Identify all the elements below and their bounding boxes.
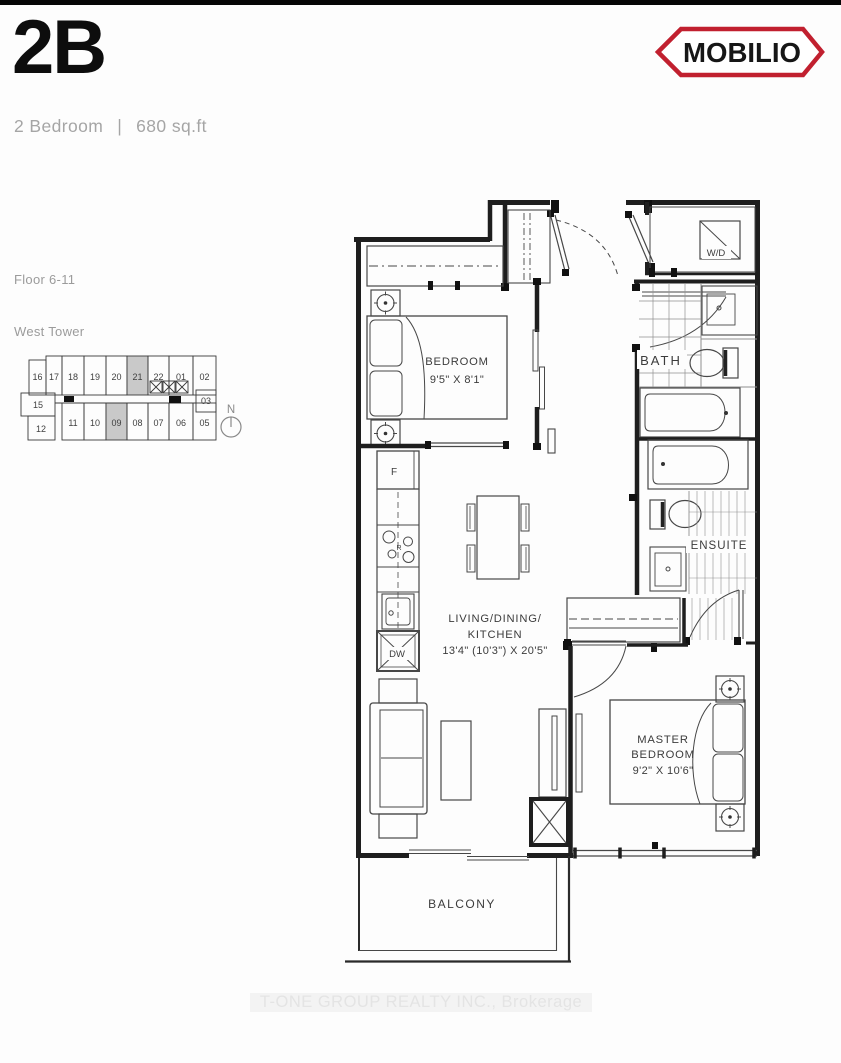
bedroom2-dims: 9'5" X 8'1"	[430, 374, 484, 386]
svg-text:18: 18	[68, 372, 78, 382]
laundry-closet: W/D	[645, 202, 757, 277]
nightstand-lamp-icons	[371, 290, 400, 447]
svg-text:16: 16	[32, 372, 42, 382]
balcony-label: BALCONY	[428, 897, 496, 911]
ensuite-door	[683, 590, 757, 645]
bath-tub-icon	[640, 388, 740, 437]
bedroom2: BEDROOM 9'5" X 8'1"	[356, 246, 555, 453]
ensuite-tub-icon	[648, 440, 748, 489]
master-bedroom: MASTER BEDROOM 9'2" X 10'6"	[573, 676, 757, 859]
svg-text:07: 07	[153, 418, 163, 428]
ensuite-label: ENSUITE	[691, 540, 748, 552]
side-table-icon	[379, 679, 417, 703]
svg-text:N: N	[227, 404, 235, 416]
bath-label: BATH	[640, 353, 682, 368]
master-door	[564, 639, 688, 697]
living-label-2: KITCHEN	[468, 629, 523, 641]
master-window-wall	[573, 842, 757, 859]
coffee-table-icon	[441, 721, 471, 800]
svg-text:02: 02	[199, 372, 209, 382]
dining-chair-icons	[467, 504, 529, 572]
keyplate: 16 17 18 19 20 21 22 01 02 11 10 09 08 0…	[21, 356, 216, 440]
bath-sink-icon	[702, 286, 757, 335]
svg-text:19: 19	[90, 372, 100, 382]
plan-canvas: 16 17 18 19 20 21 22 01 02 11 10 09 08 0…	[0, 0, 841, 1063]
fridge-label: F	[391, 467, 397, 478]
svg-text:21: 21	[132, 372, 142, 382]
svg-text:10: 10	[90, 418, 100, 428]
tv-console-icon	[539, 709, 582, 797]
svg-text:15: 15	[33, 400, 43, 410]
foyer-closet	[501, 202, 550, 291]
dishwasher-label: DW	[389, 649, 405, 660]
dining-table-icon	[477, 496, 519, 579]
svg-text:20: 20	[111, 372, 121, 382]
balcony-door	[409, 850, 529, 860]
sofa-icon	[370, 703, 427, 814]
svg-text:17: 17	[49, 372, 59, 382]
range-label: R	[396, 545, 401, 552]
living-furniture	[370, 679, 582, 845]
north-compass-icon: N	[221, 404, 241, 437]
dishwasher-icon: DW	[377, 631, 419, 671]
wd-label: W/D	[707, 248, 726, 259]
svg-text:08: 08	[132, 418, 142, 428]
svg-text:22: 22	[153, 372, 163, 382]
master-label-1: MASTER	[637, 734, 688, 746]
bedroom2-label: BEDROOM	[425, 356, 488, 368]
hall-closet	[567, 598, 684, 645]
master-label-2: BEDROOM	[631, 749, 694, 761]
svg-text:12: 12	[36, 424, 46, 434]
svg-text:11: 11	[68, 418, 77, 428]
fridge-icon: F	[377, 451, 419, 489]
kitchen: F R	[377, 451, 419, 671]
dining-set	[467, 496, 529, 579]
entry-door	[547, 210, 655, 276]
svg-text:01: 01	[176, 372, 186, 382]
svg-text:03: 03	[201, 396, 211, 406]
shaft-icon	[531, 799, 568, 845]
balcony: BALCONY	[345, 856, 571, 962]
svg-text:05: 05	[199, 418, 209, 428]
svg-text:09: 09	[111, 418, 121, 428]
ensuite: ENSUITE	[648, 440, 757, 645]
floorplan-page: 2B 2 Bedroom | 680 sq.ft MOBILIO Floor 6…	[0, 0, 841, 1063]
living-dims: 13'4" (10'3") X 20'5"	[442, 645, 547, 657]
bath-toilet-icon	[690, 348, 738, 378]
ensuite-tiles	[689, 491, 757, 640]
living-labels: LIVING/DINING/ KITCHEN 13'4" (10'3") X 2…	[442, 613, 547, 657]
side-table-icon	[379, 814, 417, 838]
brokerage-watermark: T-ONE GROUP REALTY INC., Brokerage	[250, 993, 592, 1012]
living-label-1: LIVING/DINING/	[448, 613, 541, 625]
range-icon: R	[383, 531, 414, 563]
ensuite-toilet-icon	[650, 500, 701, 529]
master-dims: 9'2" X 10'6"	[633, 765, 694, 777]
ensuite-sink-icon	[650, 547, 686, 591]
svg-text:06: 06	[176, 418, 186, 428]
